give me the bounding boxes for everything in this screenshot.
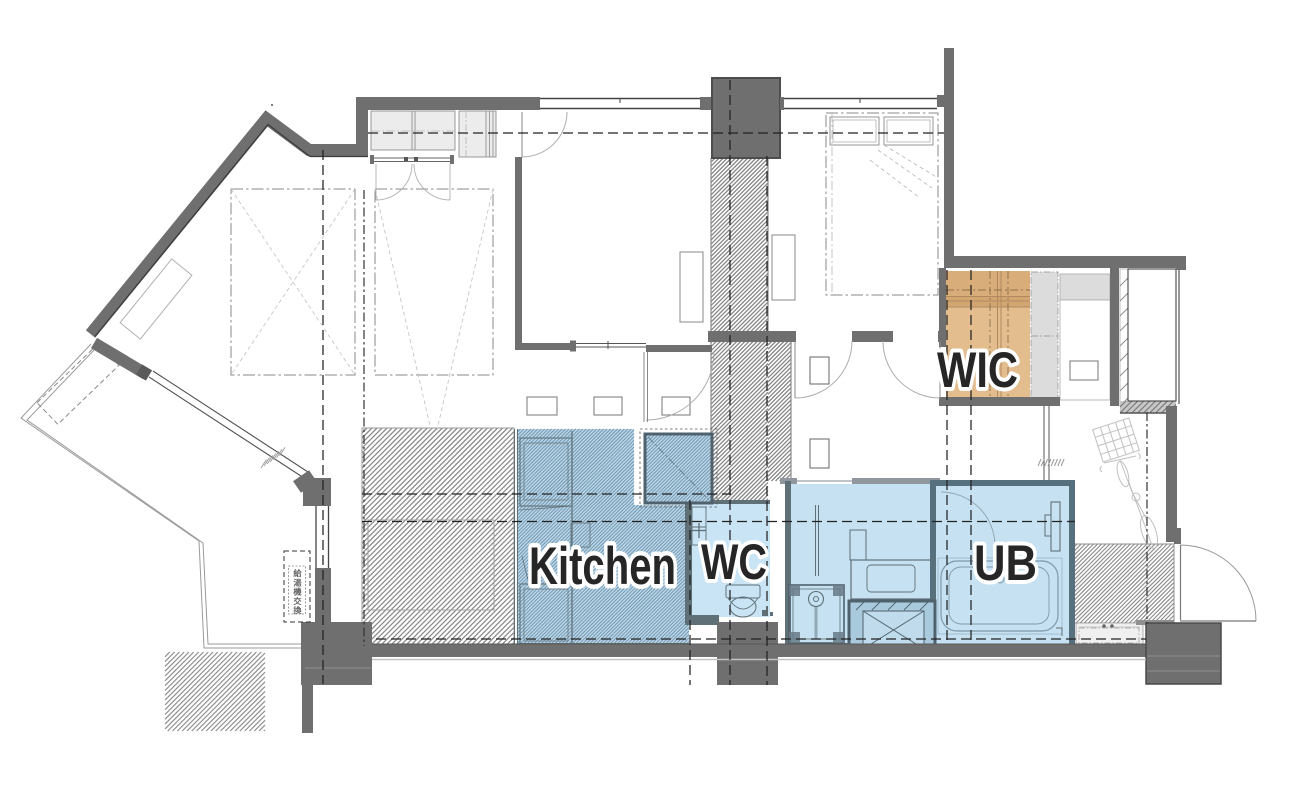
- svg-text:Kitchen: Kitchen: [529, 537, 676, 596]
- svg-text:WC: WC: [701, 534, 767, 590]
- svg-text:給湯機交換: 給湯機交換: [293, 568, 302, 615]
- svg-text:WIC: WIC: [937, 342, 1018, 398]
- svg-text:UB: UB: [974, 535, 1037, 591]
